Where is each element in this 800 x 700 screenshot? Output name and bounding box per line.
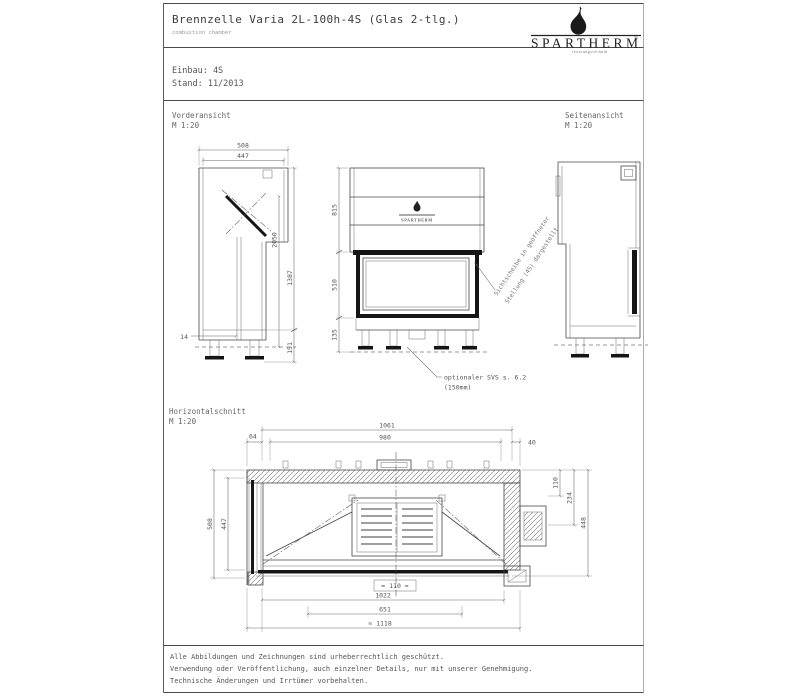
dim-side-wall: 14	[180, 333, 188, 341]
stand-field: Stand: 11/2013	[172, 79, 244, 89]
view-scale-side: M 1:20	[565, 121, 593, 130]
dim-side-depth-outer: 508	[237, 142, 249, 150]
dim-front-glass: 510	[331, 279, 339, 291]
mini-brand-wordmark: SPARTHERM	[401, 218, 433, 223]
footer-line3: Technische Änderungen und Irrtümer vorbe…	[170, 676, 368, 685]
dim-plan-right-b: 234	[566, 492, 574, 504]
dim-plan-width-outer: 1061	[379, 422, 395, 430]
view-label-side: Seitenansicht	[565, 111, 624, 120]
einbau-field: Einbau: 4S	[172, 66, 223, 76]
page-subtitle: combustion chamber	[172, 30, 232, 36]
dim-plan-bottom-c: ≈ 1118	[368, 620, 392, 628]
spartherm-logo: SPARTHERM ® feuerungstechnik	[531, 7, 641, 55]
dim-plan-depth-outer: 508	[206, 518, 214, 530]
note-svs-line1: optionaler SVS s. 6.2	[444, 374, 526, 382]
view-label-front: Vorderansicht	[172, 111, 231, 120]
footer-line1: Alle Abbildungen und Zeichnungen sind ur…	[170, 653, 444, 661]
front-view: SPARTHERM 815 510 135 Sichtsc	[331, 168, 561, 392]
footer-line2: Verwendung oder Veröffentlichung, auch e…	[170, 665, 532, 673]
page-title: Brennzelle Varia 2L-100h-4S (Glas 2-tlg.…	[172, 13, 460, 26]
dim-side-inner-height: 2050	[271, 232, 279, 248]
title-block: Brennzelle Varia 2L-100h-4S (Glas 2-tlg.…	[172, 13, 460, 89]
flame-icon	[571, 7, 587, 35]
dim-side-total-height: 1387	[286, 270, 294, 286]
dim-plan-offset-left: 64	[249, 433, 257, 441]
dim-side-foot-height: 151	[286, 342, 294, 354]
plan-view: 1061 980 64 40	[206, 422, 592, 633]
view-label-plan: Horizontalschnitt	[169, 407, 246, 416]
mini-flame-icon	[414, 201, 421, 212]
note-svs-line2: (150mm)	[444, 384, 471, 392]
registered-mark: ®	[634, 36, 638, 42]
dim-plan-right-a: 110	[552, 477, 560, 489]
view-scale-plan: M 1:20	[169, 417, 197, 426]
dim-plan-bottom-a: 1022	[375, 592, 391, 600]
dim-plan-right-c: 448	[580, 517, 588, 529]
dim-front-upper: 815	[331, 204, 339, 216]
dim-plan-width-inner: 980	[379, 434, 391, 442]
dim-plan-offset-right: 40	[528, 439, 536, 447]
side-profile-view: 508 447 14 2050 1387 151	[180, 142, 297, 363]
footer-disclaimer: Alle Abbildungen und Zeichnungen sind ur…	[170, 653, 532, 685]
logo-tagline: feuerungstechnik	[572, 49, 608, 54]
dim-side-depth-inner: 447	[237, 152, 249, 160]
drawing-canvas: Brennzelle Varia 2L-100h-4S (Glas 2-tlg.…	[0, 0, 800, 700]
dim-front-base: 135	[331, 329, 339, 341]
right-side-view	[554, 162, 648, 358]
dim-plan-front-center: ≈ 110 ≈	[381, 582, 408, 590]
view-scale-front: M 1:20	[172, 121, 200, 130]
dim-plan-bottom-b: 651	[379, 606, 391, 614]
dim-plan-depth-inner: 447	[220, 518, 228, 530]
